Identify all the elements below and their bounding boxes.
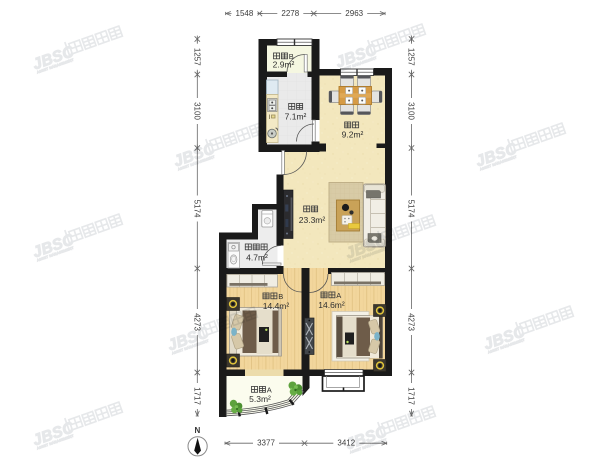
svg-text:23.3m²: 23.3m² <box>299 215 326 225</box>
svg-text:2.9m²: 2.9m² <box>273 60 295 70</box>
svg-text:1548: 1548 <box>236 9 254 18</box>
svg-text:B: B <box>278 292 283 301</box>
svg-text:N: N <box>195 426 201 435</box>
svg-text:5.3m²: 5.3m² <box>249 394 271 404</box>
svg-text:5174: 5174 <box>192 200 201 218</box>
svg-text:1257: 1257 <box>407 48 416 66</box>
svg-text:4.7m²: 4.7m² <box>246 253 268 263</box>
svg-text:9.2m²: 9.2m² <box>342 130 364 140</box>
svg-text:14.4m²: 14.4m² <box>263 301 290 311</box>
svg-text:1257: 1257 <box>192 48 201 66</box>
svg-text:2278: 2278 <box>281 9 299 18</box>
svg-text:5174: 5174 <box>407 200 416 218</box>
svg-text:1717: 1717 <box>407 387 416 405</box>
svg-text:3377: 3377 <box>257 439 275 448</box>
svg-text:14.6m²: 14.6m² <box>318 300 345 310</box>
svg-text:4273: 4273 <box>407 313 416 331</box>
svg-text:7.1m²: 7.1m² <box>285 112 307 122</box>
svg-text:1717: 1717 <box>192 387 201 405</box>
svg-text:A: A <box>336 291 341 300</box>
svg-text:2963: 2963 <box>345 9 363 18</box>
svg-text:3100: 3100 <box>192 102 201 120</box>
svg-text:3100: 3100 <box>407 102 416 120</box>
